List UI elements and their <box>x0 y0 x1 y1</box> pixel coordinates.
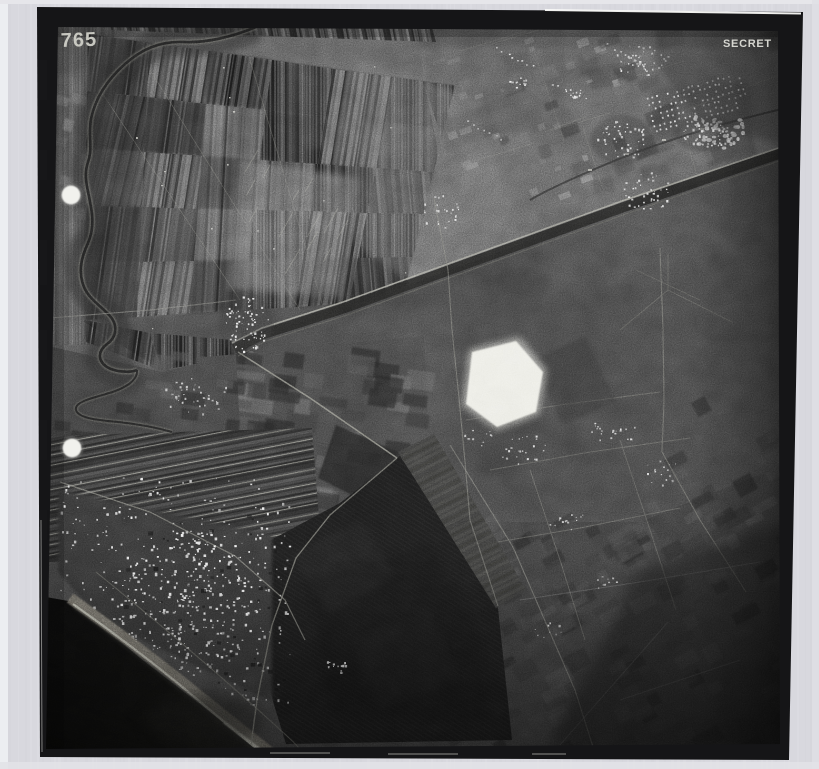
svg-text:SECRET: SECRET <box>723 38 772 50</box>
svg-text:765: 765 <box>60 29 97 52</box>
